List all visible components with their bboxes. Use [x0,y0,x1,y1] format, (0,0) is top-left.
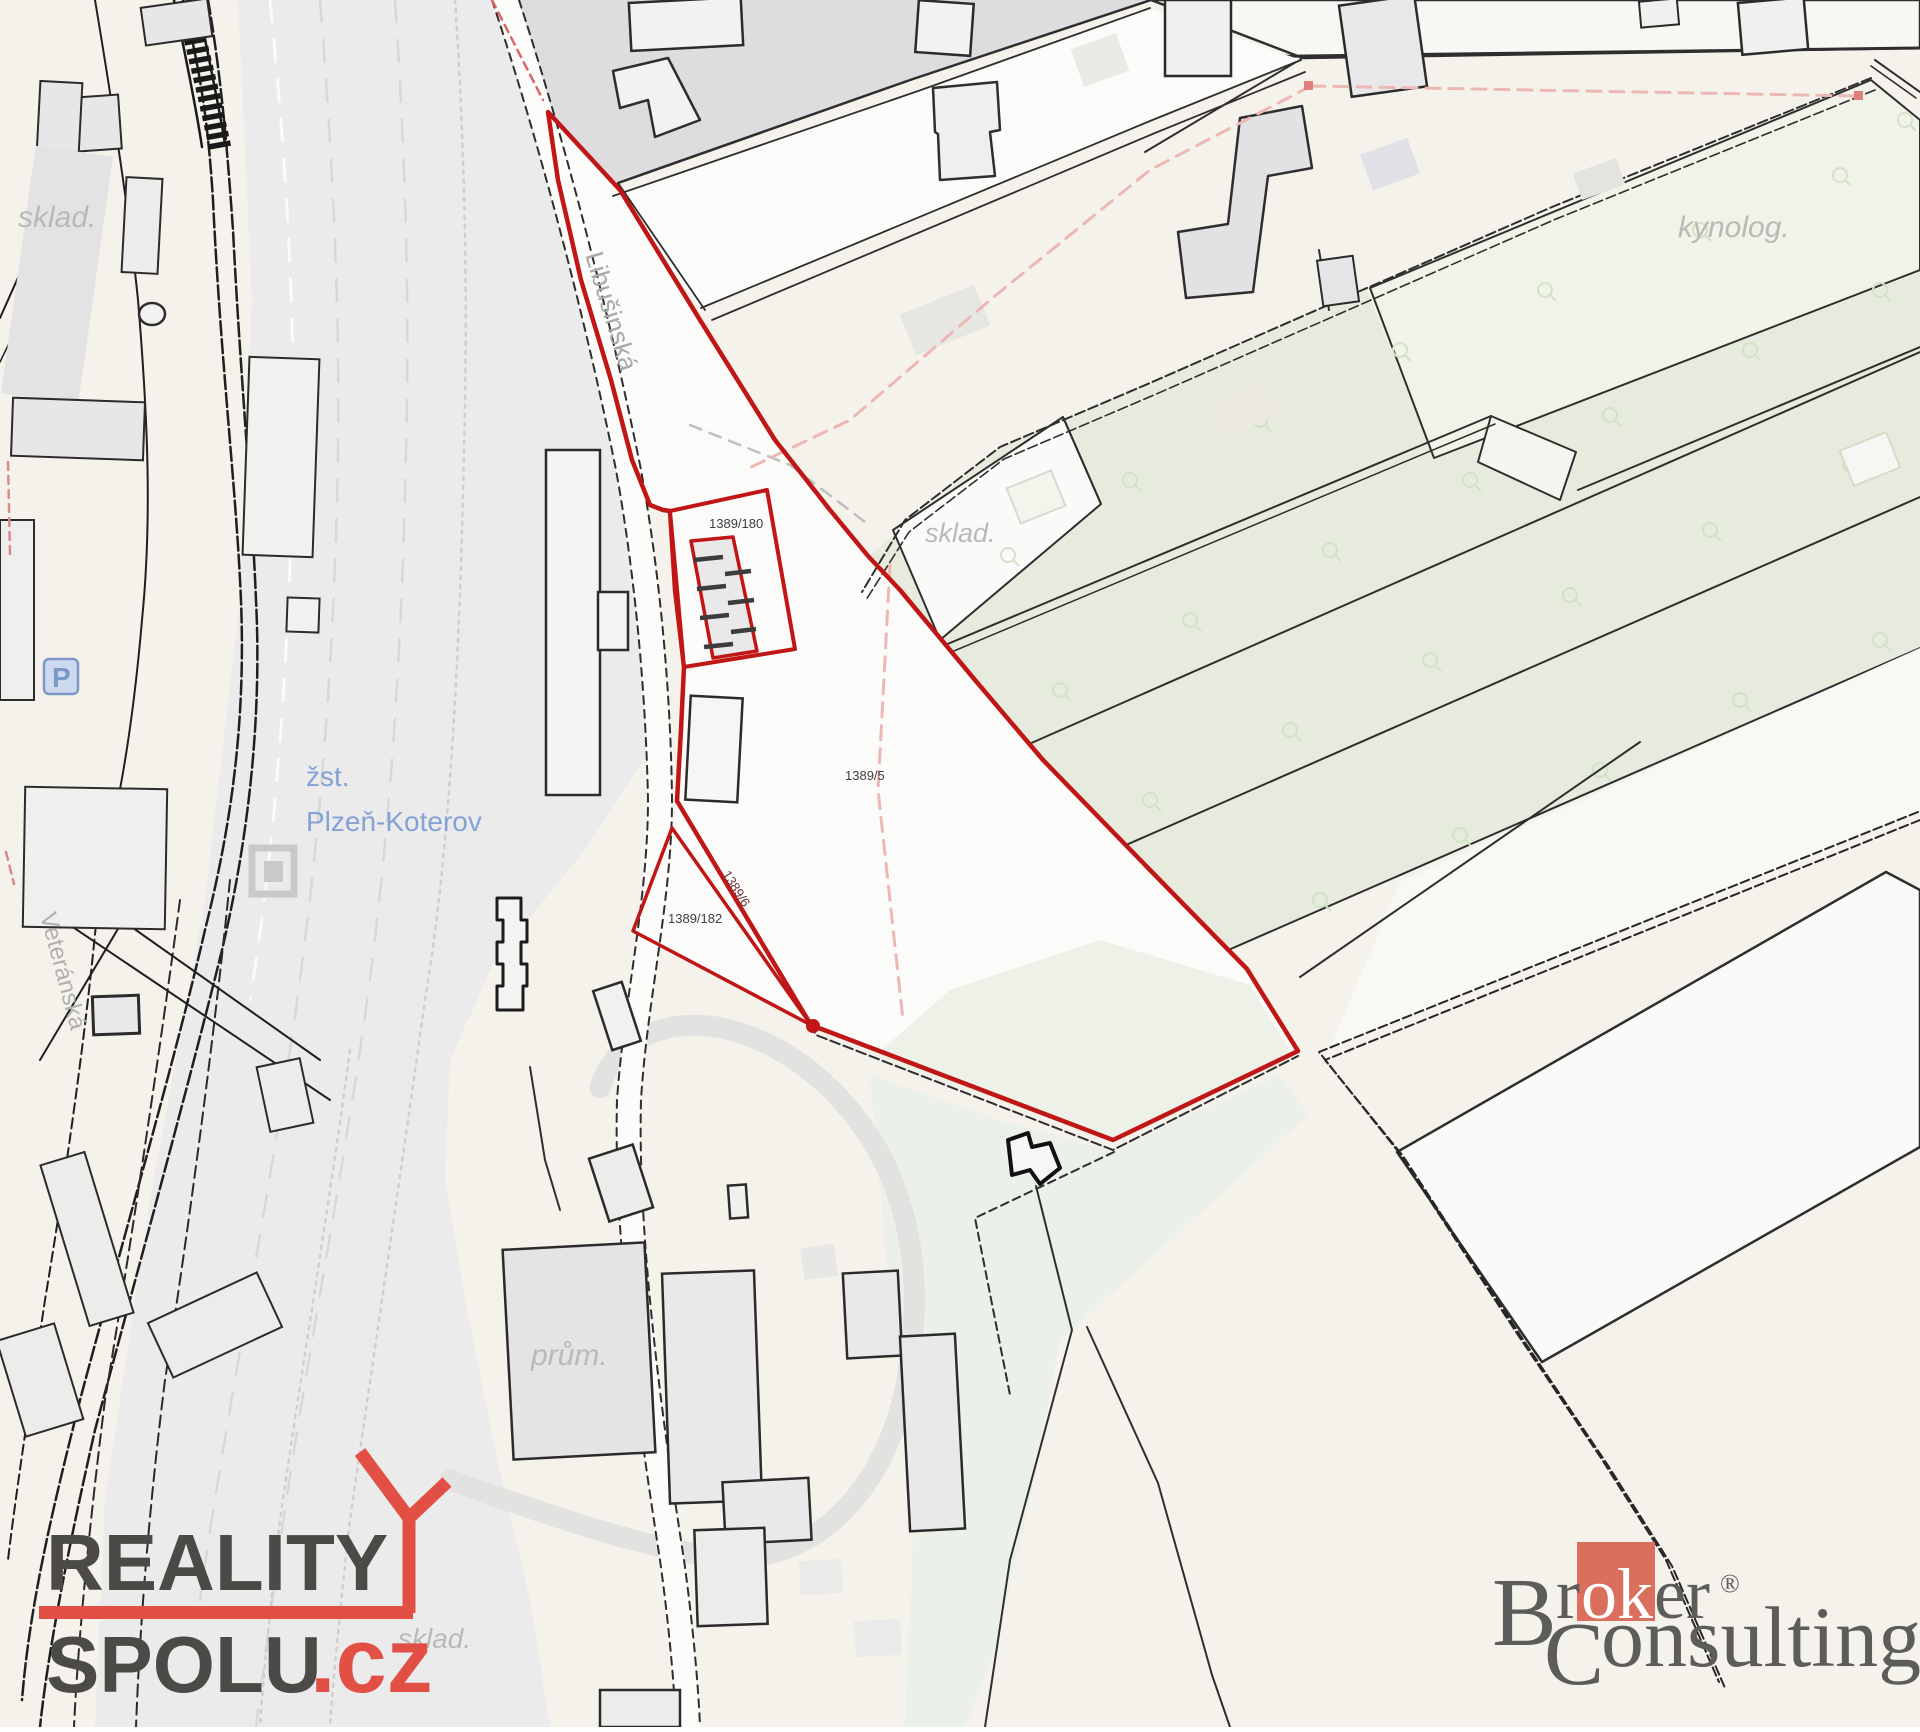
svg-text:.cz: .cz [310,1610,433,1712]
svg-text:P: P [52,662,71,693]
svg-text:kynolog.: kynolog. [1678,211,1790,244]
svg-text:C: C [1544,1605,1604,1704]
svg-text:sklad.: sklad. [925,518,996,548]
svg-text:žst.: žst. [306,761,350,792]
svg-text:onsulting: onsulting [1601,1589,1920,1685]
svg-text:sklad.: sklad. [18,201,96,234]
svg-text:1389/182: 1389/182 [668,911,722,926]
svg-text:1389/180: 1389/180 [709,516,763,531]
svg-text:SPOLU: SPOLU [46,1620,322,1709]
svg-text:1389/5: 1389/5 [845,768,885,783]
svg-text:REALITY: REALITY [46,1518,388,1607]
svg-text:Plzeň-Koterov: Plzeň-Koterov [306,806,482,837]
svg-text:prům.: prům. [530,1339,608,1372]
